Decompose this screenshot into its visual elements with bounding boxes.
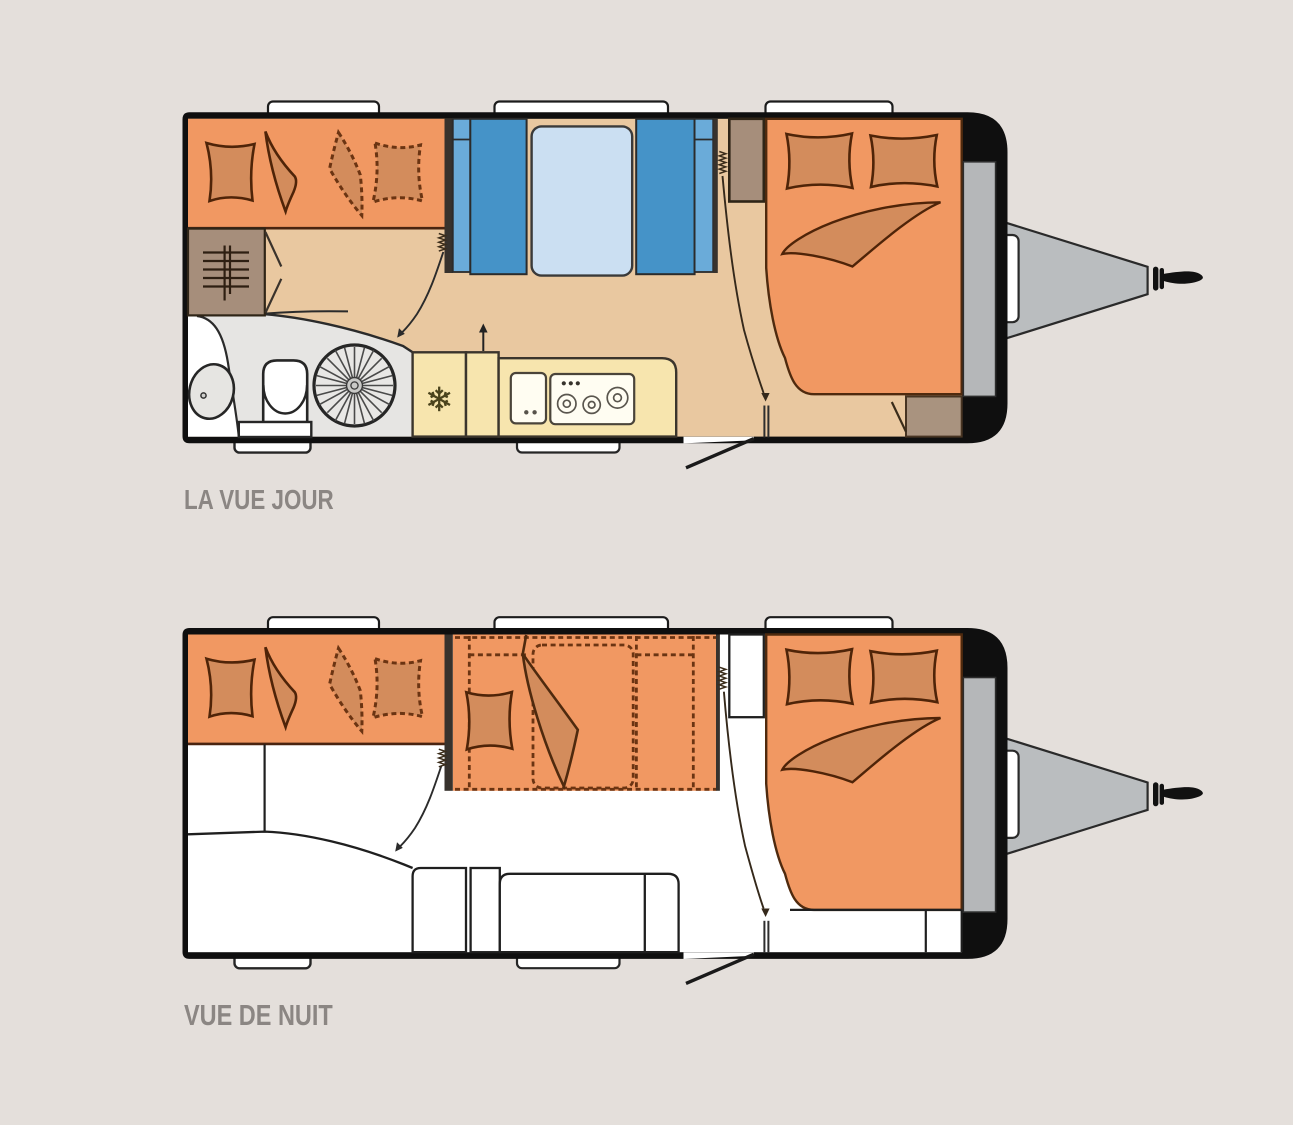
svg-text:LA VUE JOUR: LA VUE JOUR: [184, 485, 334, 516]
svg-text:VUE DE NUIT: VUE DE NUIT: [184, 999, 333, 1032]
